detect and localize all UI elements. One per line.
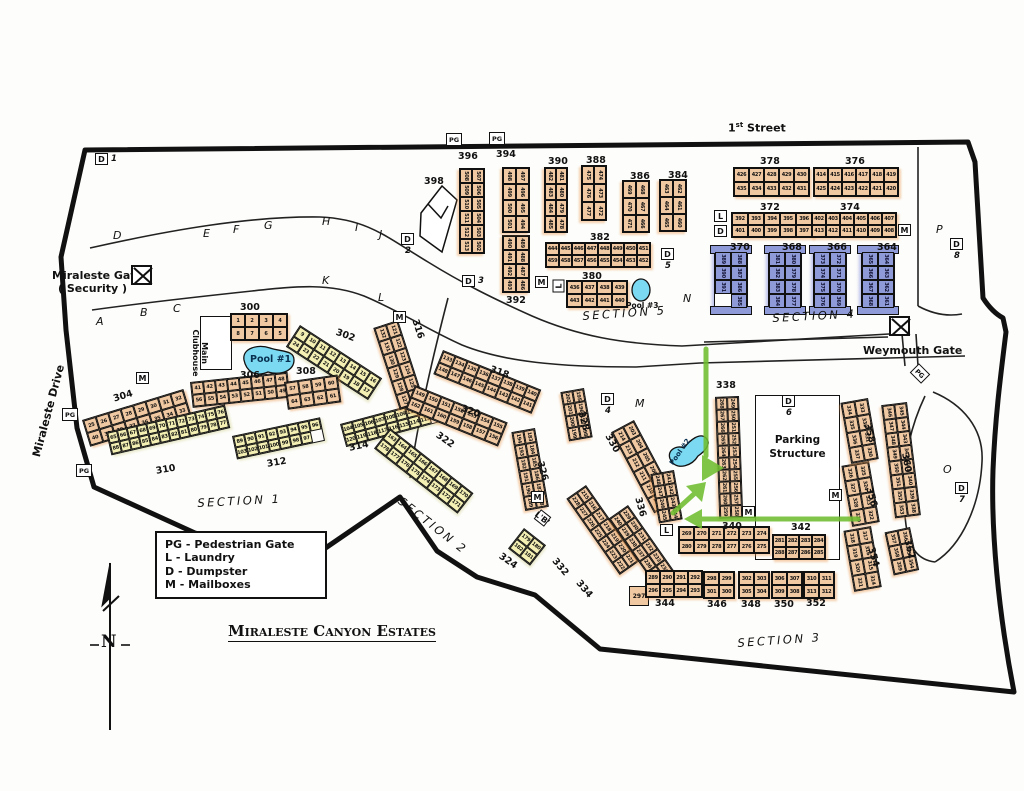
unit-291: 291 — [674, 571, 688, 584]
unit-487: 487 — [516, 264, 529, 278]
unit-450: 450 — [624, 243, 637, 255]
unit-382: 382 — [769, 266, 785, 280]
unit-452: 452 — [637, 255, 650, 267]
unit-378: 378 — [785, 280, 801, 294]
unit-441: 441 — [597, 294, 612, 307]
unit-381: 381 — [769, 252, 785, 266]
unit-282: 282 — [786, 535, 799, 547]
unit-61: 61 — [326, 388, 341, 403]
unit-264: 264 — [718, 445, 729, 457]
building-370-label: 370 — [730, 242, 750, 253]
unit-287: 287 — [786, 547, 799, 559]
unit-6: 6 — [259, 327, 273, 340]
unit-482: 482 — [545, 168, 556, 184]
unit-418: 418 — [870, 168, 884, 182]
unit-431: 431 — [794, 182, 809, 196]
unit-281: 281 — [773, 535, 786, 547]
unit-263: 263 — [718, 457, 729, 469]
unit-509: 509 — [460, 183, 472, 197]
unit-262: 262 — [719, 469, 730, 481]
miraleste-gate-label: Miraleste Gate ( Security ) — [52, 270, 143, 295]
unit-496: 496 — [516, 184, 529, 200]
unit-508: 508 — [460, 169, 472, 183]
unit-512: 512 — [460, 225, 472, 239]
legend-item-pg: PG - Pedestrian Gate — [165, 538, 317, 551]
unit-279: 279 — [694, 540, 709, 553]
unit-353: 353 — [894, 502, 908, 517]
pedestrian-gate-icon: PG — [76, 464, 92, 477]
unit-454: 454 — [611, 255, 624, 267]
unit-489: 489 — [516, 236, 529, 250]
building-300: 12348765 — [230, 313, 288, 341]
unit-426: 426 — [734, 168, 749, 182]
building-378-label: 378 — [760, 156, 780, 167]
unit-245: 245 — [658, 509, 671, 523]
unit-257: 257 — [730, 493, 741, 505]
unit-309: 309 — [772, 585, 787, 598]
unit-368: 368 — [862, 294, 878, 308]
unit-396: 396 — [796, 213, 812, 225]
unit-428: 428 — [764, 168, 779, 182]
unit-369: 369 — [830, 294, 846, 308]
building-376-label: 376 — [845, 156, 865, 167]
unit-380: 380 — [785, 252, 801, 266]
unit-259: 259 — [720, 505, 731, 517]
building-382: 4444454464474484494504514594584574564554… — [545, 242, 651, 268]
unit-7: 7 — [245, 327, 259, 340]
unit-301: 301 — [704, 585, 719, 598]
unit-449: 449 — [611, 243, 624, 255]
unit-295: 295 — [660, 584, 674, 597]
unit-305: 305 — [739, 585, 754, 598]
pedestrian-gate-icon: PG — [446, 133, 462, 146]
unit-510: 510 — [460, 197, 472, 211]
building-366-label: 366 — [827, 242, 847, 253]
legend-item-d: D - Dumpster — [165, 565, 317, 578]
unit-261: 261 — [719, 481, 730, 493]
dumpster-number: 6 — [786, 408, 792, 418]
dumpster-number: 3 — [478, 276, 484, 286]
unit-303: 303 — [754, 572, 769, 585]
unit-466: 466 — [636, 215, 649, 232]
unit-8: 8 — [231, 327, 245, 340]
unit-302: 302 — [739, 572, 754, 585]
pedestrian-gate-icon: PG — [62, 408, 78, 421]
unit-421: 421 — [870, 182, 884, 196]
mailboxes-icon: M — [531, 491, 544, 503]
unit-459: 459 — [546, 255, 559, 267]
unit-409: 409 — [868, 225, 882, 237]
unit-497: 497 — [516, 168, 529, 184]
unit-372: 372 — [830, 252, 846, 266]
unit-484: 484 — [545, 200, 556, 216]
unit-488: 488 — [516, 250, 529, 264]
mailboxes-icon: M — [898, 224, 911, 236]
unit-467: 467 — [636, 198, 649, 215]
building-348-label: 348 — [741, 599, 761, 610]
unit-367: 367 — [862, 280, 878, 294]
unit-288: 288 — [773, 547, 786, 559]
unit-96: 96 — [309, 418, 322, 431]
building-364-label: 364 — [877, 242, 897, 253]
unit-436: 436 — [567, 281, 582, 294]
unit-361: 361 — [878, 294, 894, 308]
unit-401: 401 — [732, 225, 748, 237]
unit-384: 384 — [769, 294, 785, 308]
unit-413: 413 — [812, 225, 826, 237]
unit-268: 268 — [716, 397, 727, 409]
unit-471: 471 — [623, 215, 636, 232]
dumpster-number: 7 — [959, 495, 965, 505]
unit-390: 390 — [715, 266, 731, 280]
building-308-label: 308 — [296, 366, 316, 377]
building-376: 414415416417418419425424423422421420 — [813, 167, 899, 197]
unit-387: 387 — [731, 266, 747, 280]
building-388-label: 388 — [586, 155, 606, 166]
unit-377: 377 — [785, 294, 801, 308]
unit-507: 507 — [472, 169, 484, 183]
unit-425: 425 — [814, 182, 828, 196]
dumpster-icon: D — [714, 225, 727, 237]
unit-477: 477 — [582, 202, 594, 220]
building-350-label: 350 — [774, 599, 794, 610]
road-letter-F: F — [233, 223, 239, 236]
building-386: 468467466469470471 — [622, 180, 650, 233]
road-letter-B: B — [140, 306, 148, 319]
unit-338: 338 — [906, 500, 920, 515]
unit-376: 376 — [814, 294, 830, 308]
unit-292: 292 — [688, 571, 702, 584]
unit-480: 480 — [556, 184, 567, 200]
unit-290: 290 — [660, 571, 674, 584]
unit-252: 252 — [728, 433, 739, 445]
building-352: 310311313312 — [803, 571, 835, 599]
road-letter-C: C — [173, 302, 181, 315]
mailboxes-icon: M — [742, 506, 755, 518]
unit-473: 473 — [594, 184, 606, 202]
unit-400: 400 — [748, 225, 764, 237]
unit-388: 388 — [731, 252, 747, 266]
building-386-label: 386 — [630, 171, 650, 182]
unit-258: 258 — [731, 505, 742, 517]
building-342: 281282283284288287286285 — [772, 534, 826, 560]
unit-366: 366 — [862, 266, 878, 280]
mailboxes-icon: M — [535, 276, 548, 288]
unit-385: 385 — [731, 294, 747, 308]
weymouth-gate-label: Weymouth Gate — [863, 345, 962, 358]
unit-455: 455 — [598, 255, 611, 267]
unit-502: 502 — [472, 239, 484, 253]
unit-445: 445 — [559, 243, 572, 255]
unit-310: 310 — [804, 572, 819, 585]
building-380: 436437438439443442441440 — [566, 280, 628, 308]
main-clubhouse-building: Main Clubhouse — [200, 316, 232, 370]
unit-77: 77 — [217, 416, 229, 429]
unit-406: 406 — [868, 213, 882, 225]
unit-249: 249 — [727, 397, 738, 409]
unit-424: 424 — [828, 182, 842, 196]
unit-410: 410 — [854, 225, 868, 237]
dumpster-icon: D — [462, 275, 475, 287]
unit-500: 500 — [503, 200, 516, 216]
unit-371: 371 — [830, 266, 846, 280]
unit-250: 250 — [727, 409, 738, 421]
unit-429: 429 — [779, 168, 794, 182]
building-346-label: 346 — [707, 599, 727, 610]
unit-419: 419 — [884, 168, 898, 182]
unit-434: 434 — [749, 182, 764, 196]
unit-470: 470 — [623, 198, 636, 215]
unit-285: 285 — [812, 547, 825, 559]
dumpster-icon: D — [955, 482, 968, 494]
building-392: 489488487486490491492493 — [502, 235, 530, 293]
building-342-label: 342 — [791, 522, 811, 533]
mailboxes-icon: M — [136, 372, 149, 384]
compass-north-label: N — [101, 632, 117, 652]
building-366: 372371370369373374375376 — [813, 251, 847, 309]
building-388: 474473472475476477 — [581, 165, 607, 221]
building-384: 462461460463464465 — [659, 179, 687, 232]
unit-427: 427 — [749, 168, 764, 182]
unit-260: 260 — [719, 493, 730, 505]
unit-432: 432 — [779, 182, 794, 196]
dumpster-icon: D — [950, 238, 963, 250]
unit-286: 286 — [799, 547, 812, 559]
site-map-canvas: 1st Street Miraleste Gate ( Security ) W… — [0, 0, 1024, 791]
building-384-label: 384 — [668, 170, 688, 181]
laundry-icon: L — [660, 524, 673, 536]
unit-412: 412 — [826, 225, 840, 237]
unit-504: 504 — [472, 211, 484, 225]
dumpster-number: 8 — [954, 251, 960, 261]
unit-383: 383 — [769, 280, 785, 294]
unit-420: 420 — [884, 182, 898, 196]
road-letter-K: K — [322, 274, 329, 287]
unit-483: 483 — [545, 184, 556, 200]
building-374: 402403404405406407413412411410409408 — [811, 212, 897, 238]
building-392-label: 392 — [506, 295, 526, 306]
unit-495: 495 — [516, 200, 529, 216]
unit-306: 306 — [772, 572, 787, 585]
unit-365: 365 — [862, 252, 878, 266]
unit-284: 284 — [812, 535, 825, 547]
unit-311: 311 — [819, 572, 834, 585]
unit-456: 456 — [585, 255, 598, 267]
unit-255: 255 — [730, 469, 741, 481]
unit-422: 422 — [856, 182, 870, 196]
unit-405: 405 — [854, 213, 868, 225]
unit-370: 370 — [830, 280, 846, 294]
unit-491: 491 — [503, 250, 516, 264]
building-370: 388387386385389390391 — [714, 251, 748, 309]
laundry-icon: L — [553, 280, 565, 293]
pool-3-shape — [632, 279, 650, 301]
building-344-label: 344 — [655, 598, 675, 609]
unit-415: 415 — [828, 168, 842, 182]
unit-442: 442 — [582, 294, 597, 307]
unit-414: 414 — [814, 168, 828, 182]
unit-299: 299 — [719, 572, 734, 585]
unit-398: 398 — [780, 225, 796, 237]
unit-399: 399 — [764, 225, 780, 237]
building-390-label: 390 — [548, 156, 568, 167]
unit-423: 423 — [842, 182, 856, 196]
first-street-label: 1st Street — [728, 121, 786, 135]
road-letter-N: N — [683, 292, 691, 305]
unit-458: 458 — [559, 255, 572, 267]
unit-395: 395 — [780, 213, 796, 225]
unit-444: 444 — [546, 243, 559, 255]
unit-505: 505 — [472, 197, 484, 211]
unit-251: 251 — [728, 421, 739, 433]
unit-267: 267 — [716, 409, 727, 421]
security-gate-icon — [889, 316, 910, 336]
unit-391: 391 — [715, 280, 731, 294]
building-368-label: 368 — [782, 242, 802, 253]
mailboxes-icon: M — [829, 489, 842, 501]
unit-469: 469 — [623, 181, 636, 198]
unit-256: 256 — [730, 481, 741, 493]
unit-274: 274 — [754, 527, 769, 540]
building-378: 426427428429430435434433432431 — [733, 167, 810, 197]
road-letter-M: M — [635, 397, 645, 410]
unit-464: 464 — [660, 197, 673, 214]
building-396: 507506505504503502508509510511512513 — [459, 168, 485, 254]
unit-493: 493 — [503, 278, 516, 292]
unit-293: 293 — [688, 584, 702, 597]
unit-492: 492 — [503, 264, 516, 278]
building-398-shape — [420, 186, 457, 252]
road-letter-J: J — [379, 228, 382, 241]
unit-386: 386 — [731, 280, 747, 294]
dumpster-number: 5 — [665, 261, 671, 271]
building-382-label: 382 — [590, 232, 610, 243]
unit-513: 513 — [460, 239, 472, 253]
unit-278: 278 — [709, 540, 724, 553]
unit-443: 443 — [567, 294, 582, 307]
unit-266: 266 — [717, 421, 728, 433]
building-346: 298299301300 — [703, 571, 735, 599]
road-letter-I: I — [355, 221, 358, 234]
building-372: 392393394395396401400399398397 — [731, 212, 813, 238]
dumpster-icon: D — [661, 248, 674, 260]
unit-462: 462 — [673, 180, 686, 197]
unit-453: 453 — [624, 255, 637, 267]
unit-254: 254 — [729, 457, 740, 469]
unit-312: 312 — [819, 585, 834, 598]
laundry-icon: L — [714, 210, 727, 222]
unit-472: 472 — [594, 202, 606, 220]
building-398-label: 398 — [424, 176, 444, 187]
unit-269: 269 — [679, 527, 694, 540]
pool-1-label: Pool #1 — [250, 354, 291, 365]
unit-476: 476 — [582, 184, 594, 202]
building-368: 380379378377381382383384 — [768, 251, 802, 309]
unit-481: 481 — [556, 168, 567, 184]
building-372-label: 372 — [760, 202, 780, 213]
unit-486: 486 — [516, 278, 529, 292]
unit-433: 433 — [764, 182, 779, 196]
unit-439: 439 — [612, 281, 627, 294]
unit-499: 499 — [503, 184, 516, 200]
unit-485: 485 — [545, 216, 556, 232]
unit-374: 374 — [814, 266, 830, 280]
unit-97: 97 — [300, 432, 313, 445]
unit-402: 402 — [812, 213, 826, 225]
unit-460: 460 — [673, 214, 686, 231]
unit-4: 4 — [273, 314, 287, 327]
unit-289: 289 — [646, 571, 660, 584]
unit-478: 478 — [556, 216, 567, 232]
unit-313: 313 — [804, 585, 819, 598]
mailboxes-icon: M — [393, 311, 406, 323]
unit-435: 435 — [734, 182, 749, 196]
unit-321: 321 — [852, 574, 867, 591]
unit-407: 407 — [882, 213, 896, 225]
building-338-label: 338 — [716, 380, 736, 391]
unit-437: 437 — [582, 281, 597, 294]
unit-411: 411 — [840, 225, 854, 237]
dumpster-number: 2 — [405, 246, 411, 256]
unit-494: 494 — [516, 216, 529, 232]
unit-359: 359 — [892, 558, 907, 574]
unit-389: 389 — [715, 252, 731, 266]
unit-375: 375 — [814, 280, 830, 294]
road-letter-P: P — [936, 223, 943, 236]
road-letter-G: G — [264, 219, 273, 232]
dumpster-icon: D — [401, 233, 414, 245]
unit-283: 283 — [799, 535, 812, 547]
unit-304: 304 — [754, 585, 769, 598]
unit-275: 275 — [754, 540, 769, 553]
building-394: 497496495494498499500501 — [502, 167, 530, 233]
map-title: Miraleste Canyon Estates — [228, 622, 436, 642]
unit-270: 270 — [694, 527, 709, 540]
road-letter-A: A — [96, 315, 104, 328]
unit-511: 511 — [460, 211, 472, 225]
unit-457: 457 — [572, 255, 585, 267]
unit-294: 294 — [674, 584, 688, 597]
building-374-label: 374 — [840, 202, 860, 213]
unit-461: 461 — [673, 197, 686, 214]
unit-417: 417 — [856, 168, 870, 182]
unit-244: 244 — [669, 507, 682, 521]
building-306-label: 306 — [240, 370, 260, 381]
building-390: 481480479478482483484485 — [544, 167, 568, 233]
unit-265: 265 — [717, 433, 728, 445]
unit-408: 408 — [882, 225, 896, 237]
dumpster-icon: D — [601, 393, 614, 405]
unit-503: 503 — [472, 225, 484, 239]
unit-276: 276 — [739, 540, 754, 553]
unit-394: 394 — [764, 213, 780, 225]
unit-1: 1 — [231, 314, 245, 327]
legend-item-l: L - Laundry — [165, 551, 317, 564]
unit-253: 253 — [729, 445, 740, 457]
unit-490: 490 — [503, 236, 516, 250]
building-338: 2492502512522532542552562572582682672662… — [715, 396, 743, 519]
unit-364: 364 — [878, 252, 894, 266]
building-348: 302303305304 — [738, 571, 770, 599]
unit-479: 479 — [556, 200, 567, 216]
unit-298: 298 — [704, 572, 719, 585]
unit-277: 277 — [724, 540, 739, 553]
unit-448: 448 — [598, 243, 611, 255]
unit-393: 393 — [748, 213, 764, 225]
unit-363: 363 — [878, 266, 894, 280]
road-letter-L: L — [378, 291, 384, 304]
unit-465: 465 — [660, 214, 673, 231]
